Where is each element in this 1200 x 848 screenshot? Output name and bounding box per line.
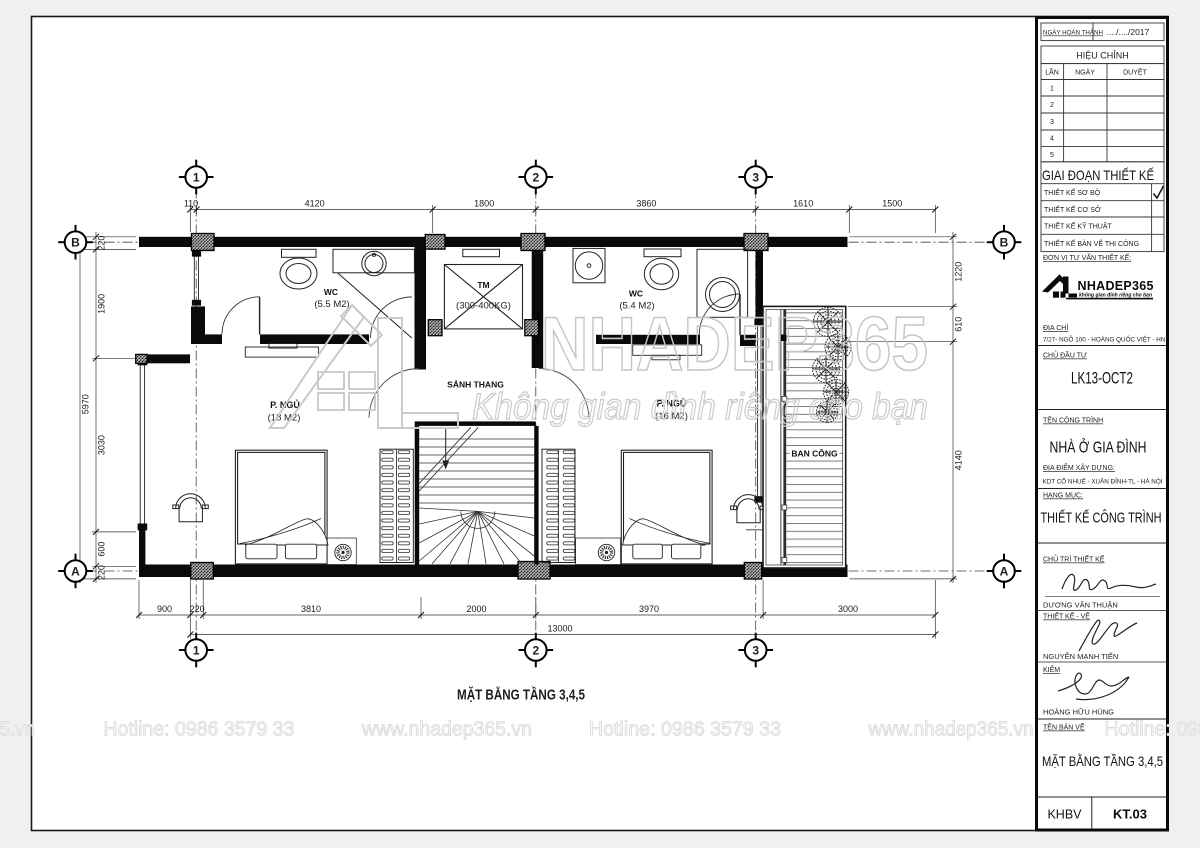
svg-text:2: 2 xyxy=(532,171,539,185)
svg-text:4120: 4120 xyxy=(305,198,325,208)
svg-text:KT.03: KT.03 xyxy=(1113,807,1147,822)
svg-text:KHBV: KHBV xyxy=(1047,808,1082,822)
svg-text:..../..../2017: ..../..../2017 xyxy=(1107,27,1150,37)
svg-text:HẠNG MỤC:: HẠNG MỤC: xyxy=(1043,493,1083,500)
svg-text:1: 1 xyxy=(1050,86,1054,93)
svg-text:600: 600 xyxy=(97,542,107,557)
svg-text:HIỆU CHỈNH: HIỆU CHỈNH xyxy=(1076,50,1129,61)
svg-text:3860: 3860 xyxy=(636,198,656,208)
svg-text:(300-400KG): (300-400KG) xyxy=(456,301,511,312)
svg-text:WC: WC xyxy=(629,289,643,299)
svg-text:4: 4 xyxy=(1050,136,1054,143)
svg-text:900: 900 xyxy=(157,604,172,614)
svg-text:THIẾT KẾ CÔNG TRÌNH: THIẾT KẾ CÔNG TRÌNH xyxy=(1041,510,1162,527)
svg-text:B: B xyxy=(1000,236,1009,250)
svg-text:GIAI ĐOẠN THIẾT KẾ: GIAI ĐOẠN THIẾT KẾ xyxy=(1042,167,1154,183)
svg-text:110: 110 xyxy=(184,198,198,208)
svg-text:ĐỊA ĐIỂM XÂY DỰNG:: ĐỊA ĐIỂM XÂY DỰNG: xyxy=(1043,463,1115,472)
svg-text:5970: 5970 xyxy=(81,394,91,414)
svg-text:3: 3 xyxy=(752,644,759,658)
svg-text:www.nhadep365.vn: www.nhadep365.vn xyxy=(0,718,35,741)
svg-text:B: B xyxy=(71,236,80,250)
svg-text:(5.5 M2): (5.5 M2) xyxy=(314,299,349,310)
svg-text:không gian đỉnh riêng cho bạn: không gian đỉnh riêng cho bạn xyxy=(1079,293,1152,299)
svg-text:2000: 2000 xyxy=(466,604,486,614)
svg-text:2: 2 xyxy=(1050,102,1054,109)
svg-text:LK13-OCT2: LK13-OCT2 xyxy=(1071,370,1133,388)
svg-text:3810: 3810 xyxy=(301,604,321,614)
svg-text:13000: 13000 xyxy=(547,623,572,633)
svg-text:1500: 1500 xyxy=(882,198,902,208)
svg-text:MẶT BẰNG TẦNG 3,4,5: MẶT BẰNG TẦNG 3,4,5 xyxy=(457,686,585,704)
svg-text:3030: 3030 xyxy=(97,435,107,455)
svg-text:220: 220 xyxy=(190,604,205,614)
svg-text:www.nhadep365.vn: www.nhadep365.vn xyxy=(361,718,532,741)
svg-text:TÊN BẢN VẼ: TÊN BẢN VẼ xyxy=(1043,723,1085,732)
svg-text:Hotline: 0986 3579 33: Hotline: 0986 3579 33 xyxy=(103,718,294,741)
svg-text:220: 220 xyxy=(97,236,107,251)
svg-text:www.nhadep365.vn: www.nhadep365.vn xyxy=(868,718,1034,741)
svg-text:TÊN CÔNG TRÌNH: TÊN CÔNG TRÌNH xyxy=(1043,416,1103,425)
svg-text:NHADEP365: NHADEP365 xyxy=(1078,279,1154,293)
svg-text:1800: 1800 xyxy=(474,198,494,208)
svg-text:4140: 4140 xyxy=(954,450,964,470)
svg-text:NGÀY: NGÀY xyxy=(1075,68,1095,77)
svg-text:1610: 1610 xyxy=(793,198,813,208)
svg-text:Hotline: 0986 3579 33: Hotline: 0986 3579 33 xyxy=(1104,718,1200,741)
svg-text:DƯƠNG VĂN THUẬN: DƯƠNG VĂN THUẬN xyxy=(1043,601,1118,610)
svg-text:HOÀNG HỮU HÙNG: HOÀNG HỮU HÙNG xyxy=(1043,708,1114,717)
svg-text:Hotline: 0986 3579 33: Hotline: 0986 3579 33 xyxy=(589,718,781,741)
svg-text:NHÀ Ở GIA ĐÌNH: NHÀ Ở GIA ĐÌNH xyxy=(1050,439,1147,457)
svg-text:Không gian dình riêng cho bạn: Không gian dình riêng cho bạn xyxy=(472,386,928,427)
svg-text:1: 1 xyxy=(193,644,200,658)
svg-text:5: 5 xyxy=(1050,152,1054,159)
svg-text:WC: WC xyxy=(324,287,338,297)
svg-text:NHADEP365: NHADEP365 xyxy=(541,302,928,387)
svg-text:TM: TM xyxy=(477,280,489,290)
svg-text:A: A xyxy=(71,565,80,579)
svg-text:610: 610 xyxy=(954,317,964,332)
svg-text:ĐỊA CHỈ: ĐỊA CHỈ xyxy=(1043,323,1068,332)
svg-text:(18 M2): (18 M2) xyxy=(268,413,301,424)
svg-text:1220: 1220 xyxy=(954,262,964,282)
svg-text:1: 1 xyxy=(193,171,200,185)
svg-text:BAN CÔNG: BAN CÔNG xyxy=(791,448,838,459)
svg-text:3: 3 xyxy=(752,171,759,185)
svg-text:220: 220 xyxy=(97,565,107,580)
svg-text:NGÀY HOÀN THÀNH: NGÀY HOÀN THÀNH xyxy=(1043,30,1103,37)
svg-text:3: 3 xyxy=(1050,119,1054,126)
svg-text:DUYỆT: DUYỆT xyxy=(1123,68,1147,77)
svg-text:A: A xyxy=(1000,565,1009,579)
svg-text:1900: 1900 xyxy=(97,294,107,314)
svg-text:NGUYỄN MẠNH TIẾN: NGUYỄN MẠNH TIẾN xyxy=(1043,651,1118,661)
svg-text:3970: 3970 xyxy=(639,604,659,614)
svg-text:3000: 3000 xyxy=(838,604,858,614)
svg-text:MẶT BẰNG TẦNG 3,4,5: MẶT BẰNG TẦNG 3,4,5 xyxy=(1042,752,1163,769)
svg-text:KIỂM: KIỂM xyxy=(1043,665,1060,674)
svg-text:2: 2 xyxy=(532,644,539,658)
